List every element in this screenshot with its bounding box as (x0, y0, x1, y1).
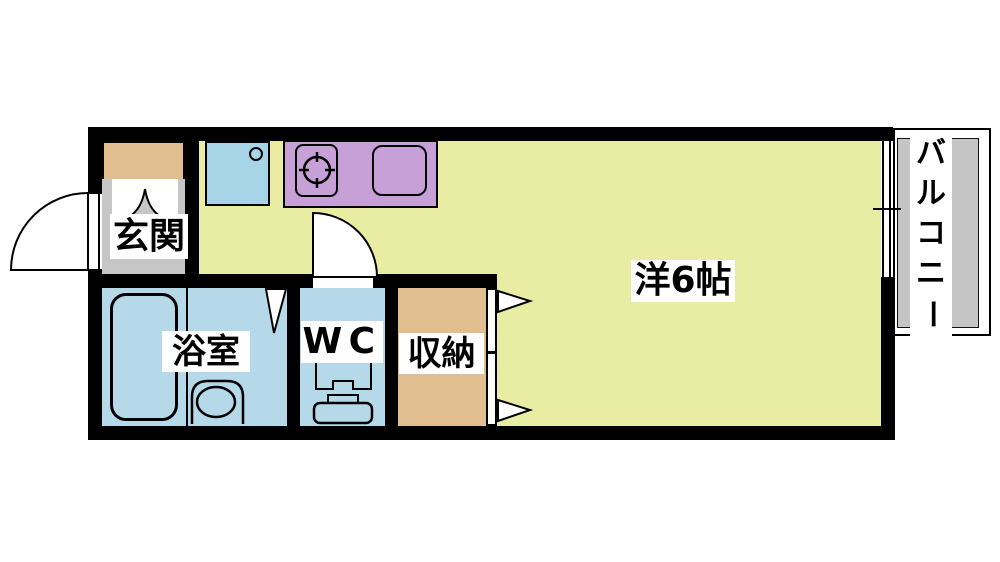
balcony-char-2: ル (911, 174, 951, 214)
label-storage: 収納 (399, 333, 484, 374)
label-main-room: 洋6帖 (631, 260, 735, 302)
entrance-shoe-cabinet (102, 141, 185, 181)
window-pane-line-right (889, 141, 891, 277)
counter-grill-unit (372, 145, 427, 196)
balcony-char-5: ー (911, 294, 951, 334)
label-bathroom: 浴室 (162, 331, 250, 372)
balcony-char-3: コ (911, 214, 951, 254)
wall-left-upper (88, 127, 102, 194)
wall-wc-storage-divider (385, 288, 398, 426)
kitchen-sink (205, 141, 270, 206)
entrance-door-leaf (88, 193, 99, 270)
label-toilet: WC (301, 321, 383, 363)
wall-left-lower (88, 269, 102, 440)
label-balcony: バ ル コ ニ ー (910, 130, 952, 338)
wall-bath-top-left (102, 274, 313, 288)
wall-bath-wc-divider (287, 288, 300, 426)
closet-door-panel-top (486, 288, 497, 353)
wall-storage-corner-stub (485, 274, 497, 288)
stove-unit (295, 144, 338, 197)
wall-top (88, 127, 893, 141)
floor-plan: 玄関 浴室 WC 収納 洋6帖 バ ル コ ニ ー (0, 0, 1000, 562)
wall-bath-top-right (373, 274, 497, 288)
closet-door-panel-bottom (486, 352, 497, 426)
wall-bottom (88, 426, 895, 440)
label-entrance: 玄関 (110, 214, 188, 259)
balcony-char-1: バ (911, 134, 951, 174)
window-pane-line-left (882, 141, 884, 277)
balcony-char-4: ニ (911, 254, 951, 294)
entrance-door-swing-arc (11, 193, 88, 270)
wc-door-opening (313, 272, 373, 288)
